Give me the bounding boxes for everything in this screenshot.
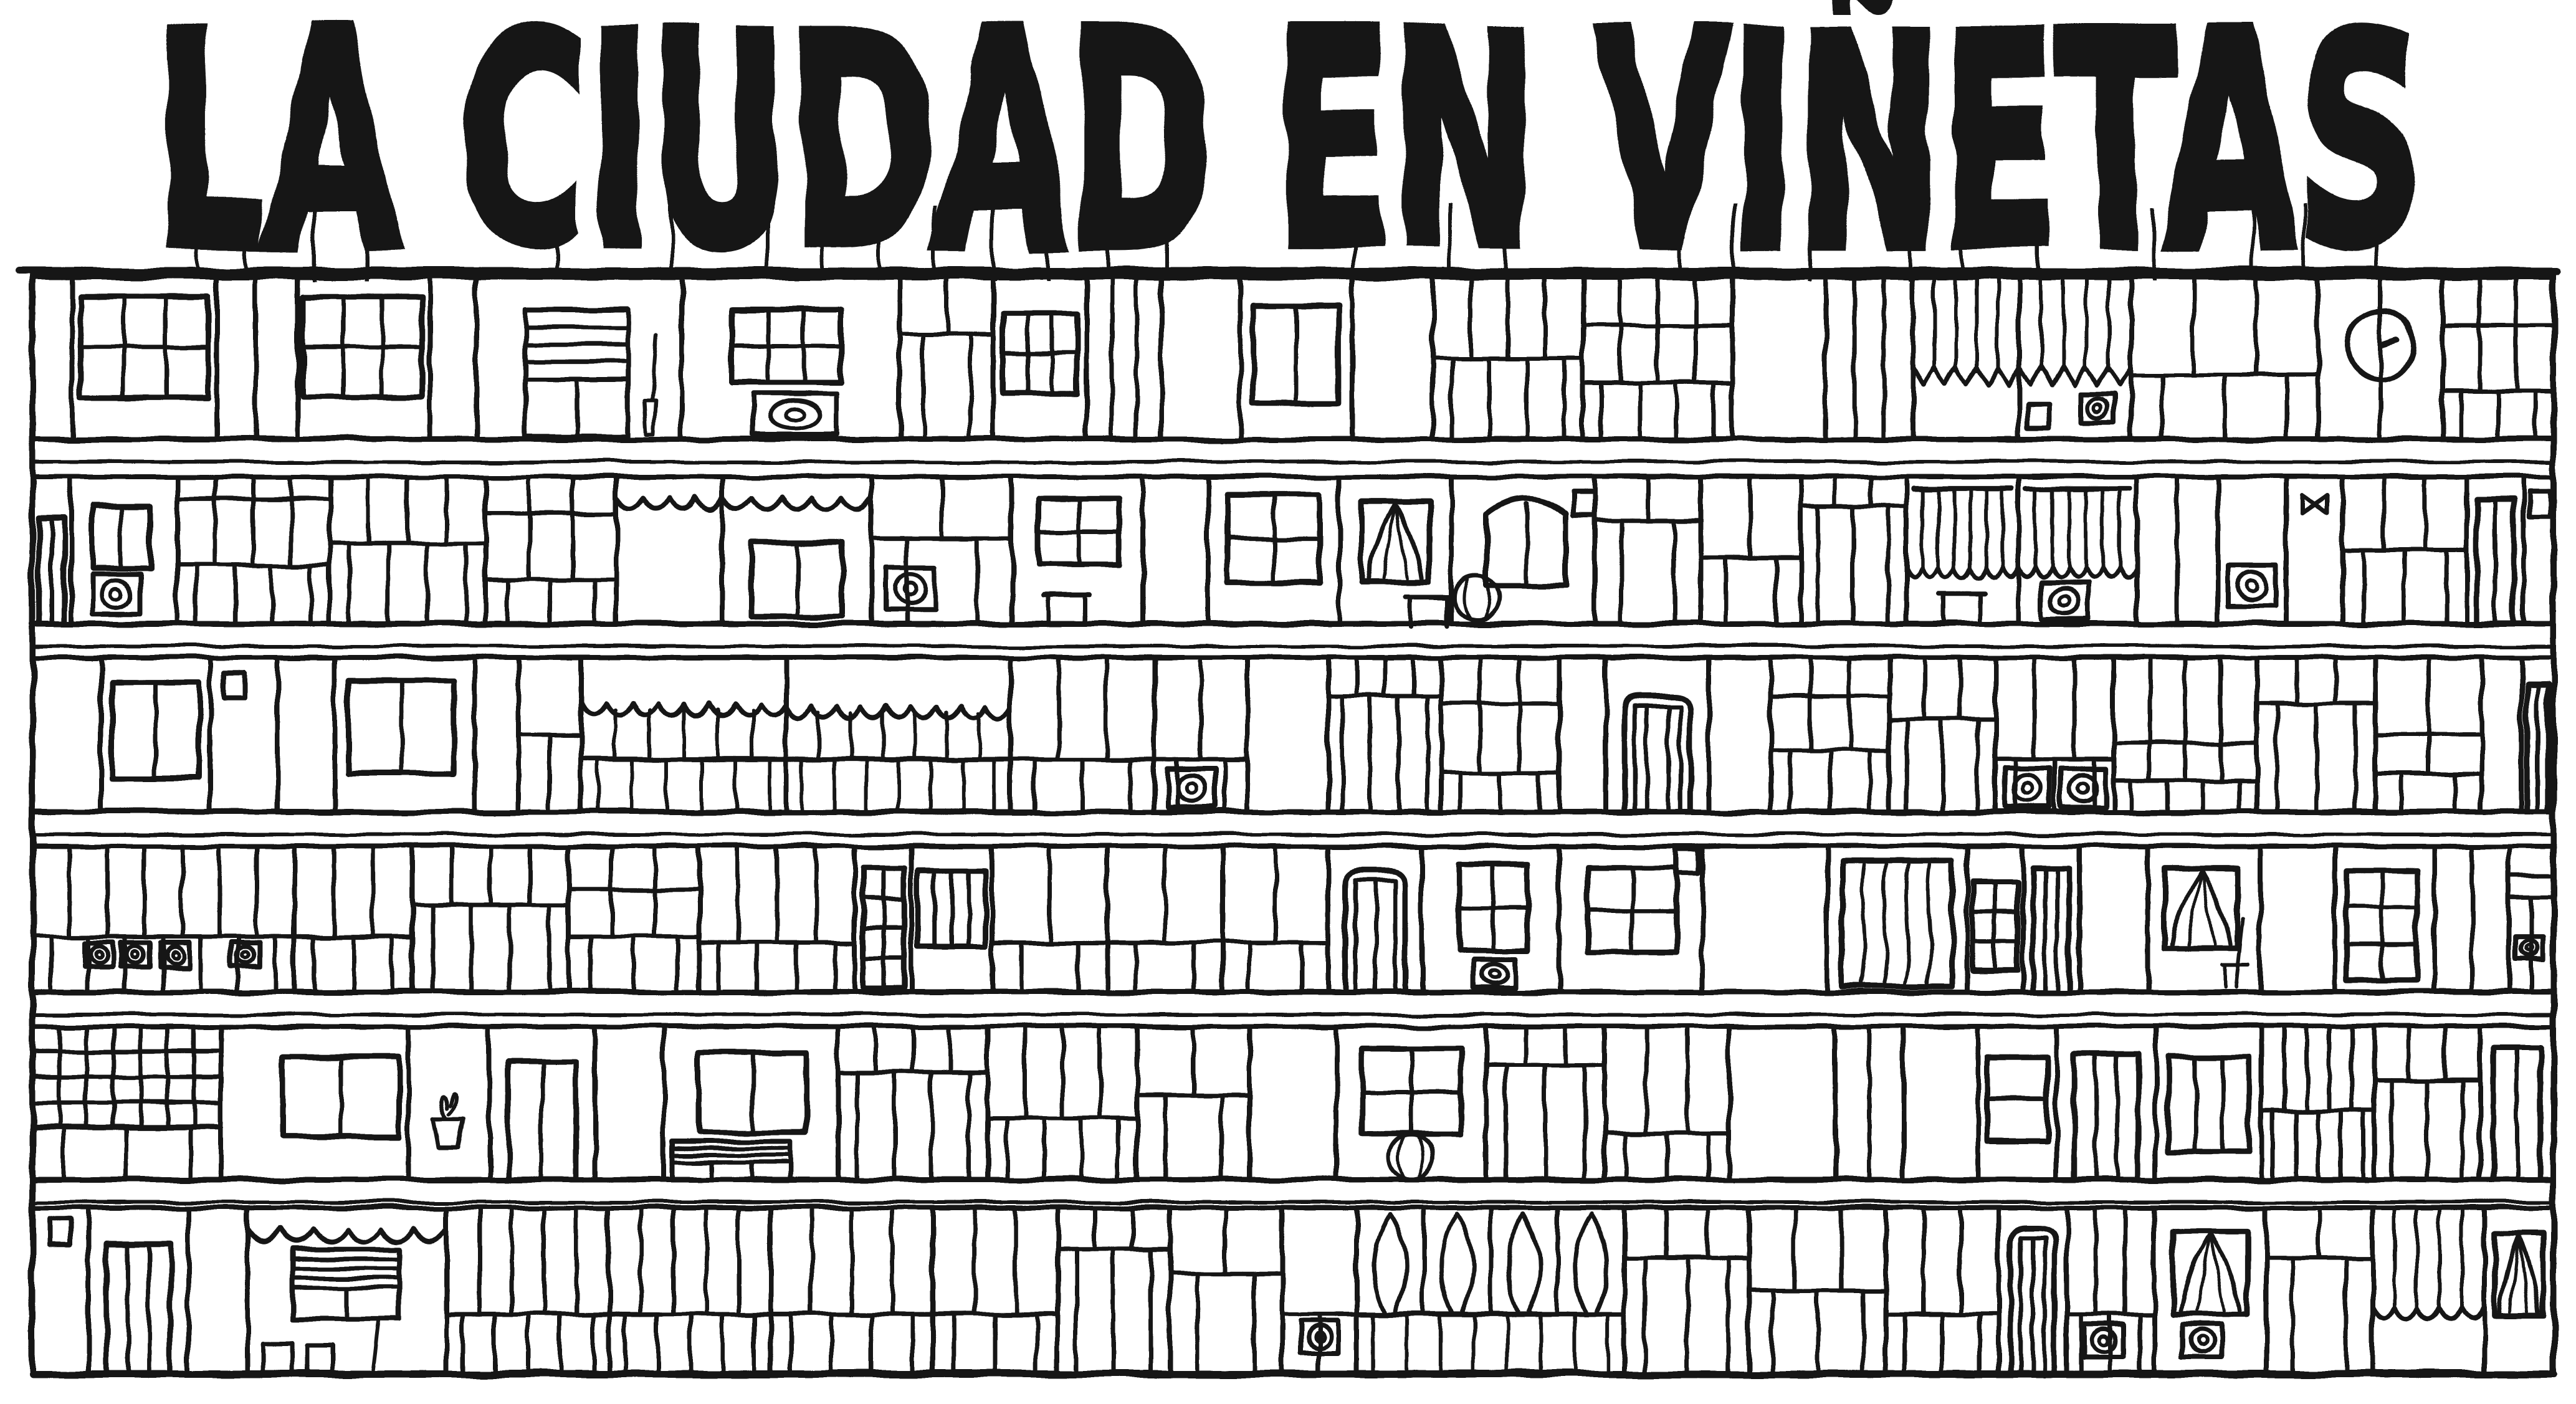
facade-svg: LA CIUDAD EN VIÑETAS bbox=[0, 0, 2576, 1404]
building-layer bbox=[19, 271, 2557, 1374]
illustration-page: LA CIUDAD EN VIÑETAS bbox=[0, 0, 2576, 1404]
page-title: LA CIUDAD EN VIÑETAS bbox=[154, 0, 2422, 314]
title-group: LA CIUDAD EN VIÑETAS bbox=[154, 0, 2422, 314]
